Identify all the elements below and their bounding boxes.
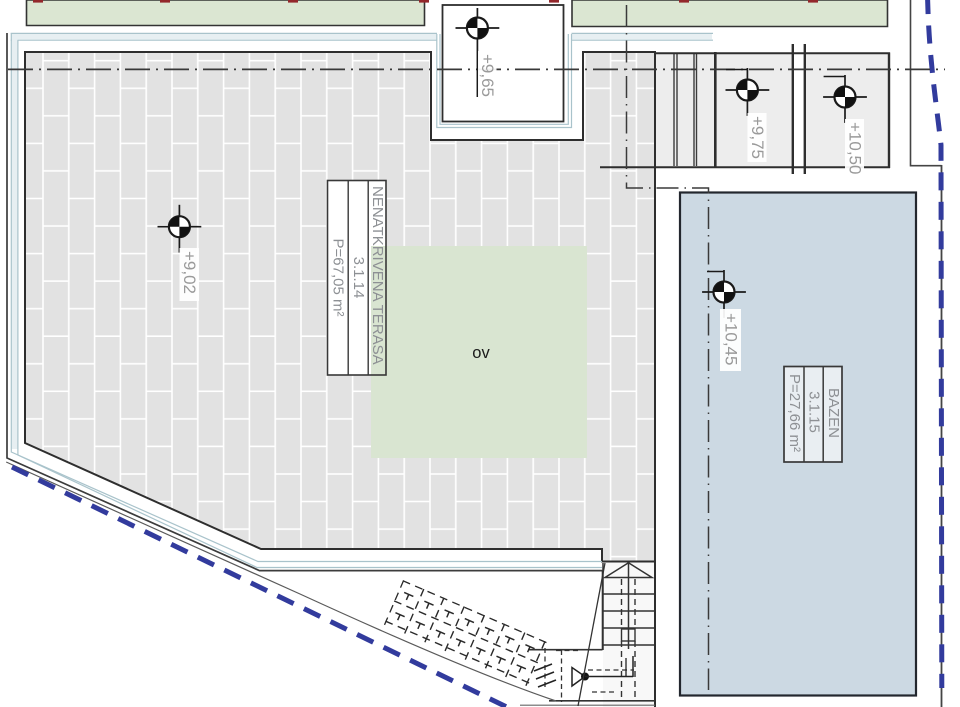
svg-text:ov: ov	[472, 344, 490, 362]
svg-text:+9,75: +9,75	[748, 116, 767, 159]
svg-text:3.1.14: 3.1.14	[350, 257, 367, 299]
svg-text:+9,02: +9,02	[180, 251, 199, 294]
svg-text:NENATKRIVENA TERASA: NENATKRIVENA TERASA	[369, 186, 386, 365]
svg-text:+9,65: +9,65	[478, 54, 497, 97]
svg-text:+10,45: +10,45	[722, 313, 741, 365]
svg-text:BAZEN: BAZEN	[825, 388, 842, 438]
svg-text:+10,50: +10,50	[846, 122, 865, 174]
svg-text:3.1.15: 3.1.15	[806, 391, 823, 433]
svg-text:P=27,66 m²: P=27,66 m²	[786, 374, 803, 452]
svg-text:P=67,05 m²: P=67,05 m²	[330, 239, 347, 317]
